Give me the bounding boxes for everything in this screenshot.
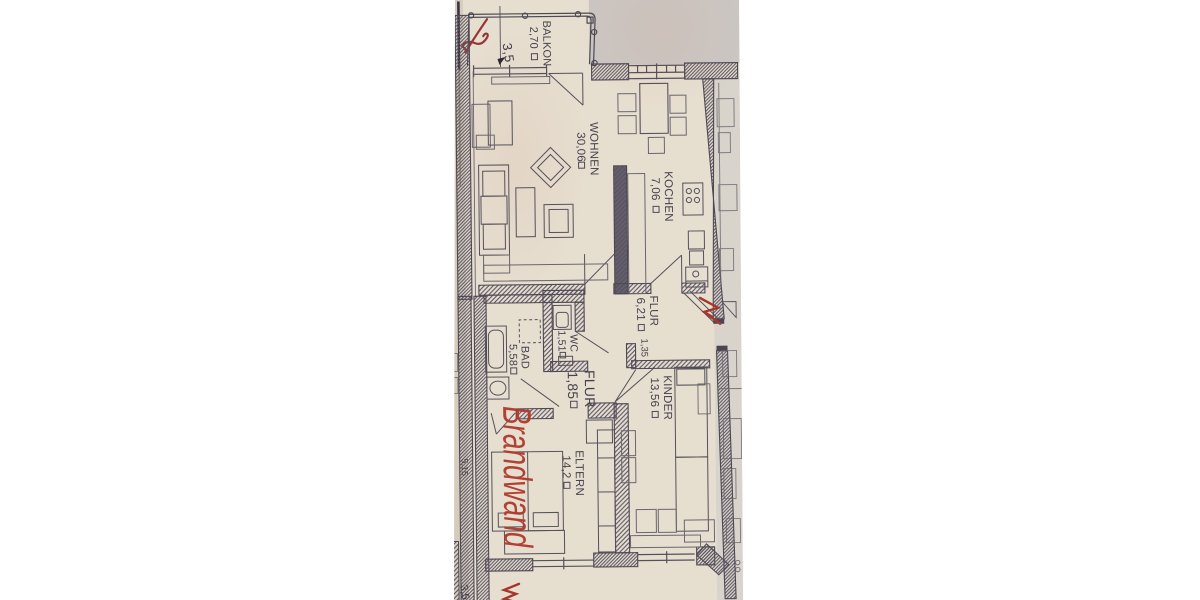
- svg-text:1,51: 1,51: [555, 330, 567, 351]
- svg-text:13,56: 13,56: [648, 377, 660, 407]
- svg-text:7,06: 7,06: [649, 177, 661, 200]
- svg-text:5,58: 5,58: [506, 344, 518, 366]
- svg-text:1,35: 1,35: [638, 338, 649, 357]
- svg-text:30,06: 30,06: [574, 132, 586, 162]
- svg-text:3,5: 3,5: [457, 584, 471, 600]
- svg-text:6,21: 6,21: [634, 298, 646, 321]
- svg-text:14,2: 14,2: [560, 455, 572, 478]
- svg-text:FLUR: FLUR: [582, 370, 598, 408]
- svg-text:WC: WC: [567, 334, 579, 352]
- svg-text:5,15: 5,15: [460, 458, 470, 476]
- svg-text:3,5: 3,5: [500, 42, 518, 64]
- svg-text:KINDER: KINDER: [661, 375, 673, 420]
- svg-text:Brandwand: Brandwand: [494, 406, 540, 550]
- svg-text:FLUR: FLUR: [647, 295, 659, 326]
- svg-text:WOHNEN: WOHNEN: [587, 122, 600, 176]
- svg-text:ELTERN: ELTERN: [573, 450, 585, 496]
- svg-text:BALKON: BALKON: [540, 20, 552, 66]
- svg-text:2,70: 2,70: [527, 27, 539, 49]
- svg-text:1,85: 1,85: [565, 371, 581, 399]
- svg-text:BAD: BAD: [518, 346, 530, 369]
- svg-text:KOCHEN: KOCHEN: [662, 171, 675, 222]
